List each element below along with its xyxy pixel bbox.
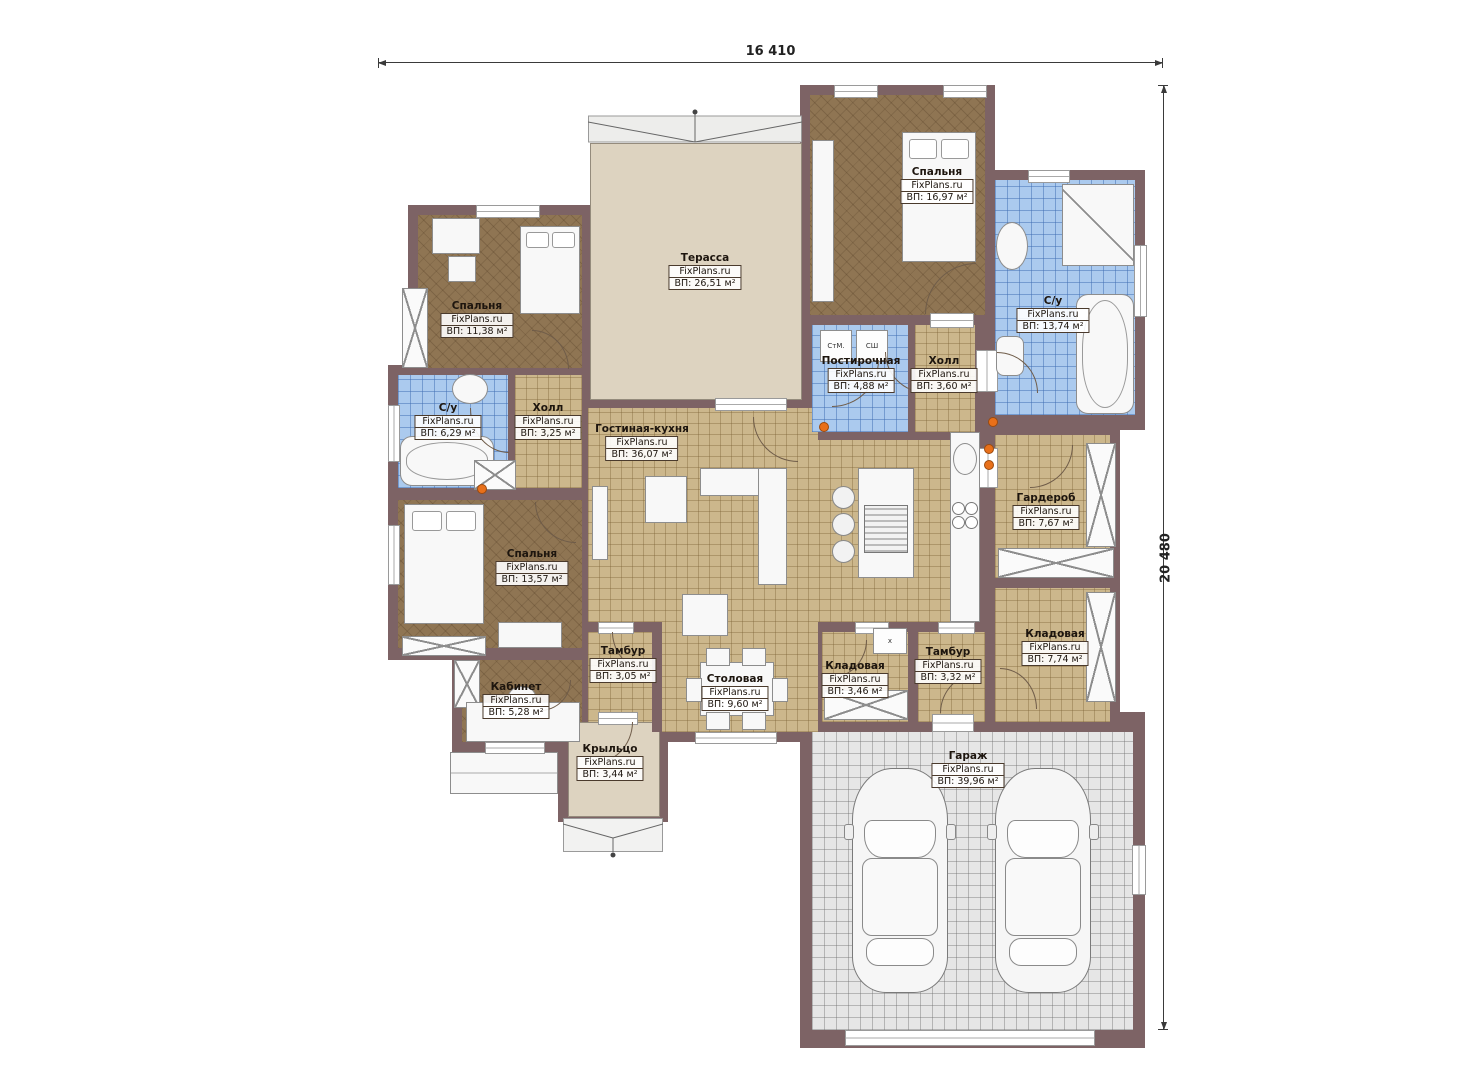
room-area: ВП: 16,97 м²	[901, 192, 972, 203]
desk	[498, 622, 562, 648]
door-opening	[932, 714, 974, 732]
dimension-right: 20 480	[1150, 85, 1174, 1030]
window	[1028, 170, 1070, 183]
watermark: FixPlans.ru	[590, 659, 655, 671]
room-area: ВП: 5,28 м²	[483, 707, 548, 718]
room-area: ВП: 7,67 м²	[1013, 518, 1078, 529]
room-name: Кладовая	[1025, 628, 1085, 640]
nightstand	[448, 256, 476, 282]
room-info-box: FixPlans.ru ВП: 3,05 м²	[589, 658, 656, 683]
room-label-wardrobe: Гардероб FixPlans.ru ВП: 7,67 м²	[1012, 492, 1079, 530]
room-info-box: FixPlans.ru ВП: 3,32 м²	[914, 659, 981, 684]
watermark: FixPlans.ru	[828, 369, 893, 381]
office-stoop	[450, 752, 558, 794]
arrow-down-icon	[1161, 1022, 1167, 1030]
burner-icon	[965, 516, 978, 529]
room-name: Постирочная	[822, 355, 901, 367]
room-label-bedroom-left: Спальня FixPlans.ru ВП: 13,57 м²	[495, 548, 568, 586]
room-name: Кладовая	[825, 660, 885, 672]
arrow-left-icon	[378, 60, 386, 66]
room-name: Тамбур	[601, 645, 646, 657]
room-area: ВП: 36,07 м²	[606, 449, 677, 460]
wardrobe-cabinet	[998, 548, 1114, 578]
watermark: FixPlans.ru	[1017, 309, 1088, 321]
room-info-box: FixPlans.ru ВП: 39,96 м²	[931, 763, 1004, 788]
room-name: С/у	[1044, 295, 1062, 307]
wardrobe-cabinet	[402, 288, 428, 368]
dimension-top: 16 410	[378, 46, 1163, 68]
room-label-living-kitchen: Гостиная-кухня FixPlans.ru ВП: 36,07 м²	[595, 423, 689, 461]
room-name: Кабинет	[491, 681, 542, 693]
window	[943, 85, 987, 98]
pillow	[412, 511, 442, 531]
room-name: Терасса	[681, 252, 729, 264]
car-roof	[1005, 858, 1081, 936]
washing-machine-label: СтМ.	[827, 342, 844, 350]
car	[995, 768, 1091, 993]
watermark: FixPlans.ru	[932, 764, 1003, 776]
room-name: Спальня	[507, 548, 557, 560]
window	[1132, 845, 1146, 895]
window	[485, 742, 545, 754]
watermark: FixPlans.ru	[483, 695, 548, 707]
car-mirror	[946, 824, 956, 840]
room-info-box: FixPlans.ru ВП: 26,51 м²	[668, 265, 741, 290]
room-label-dining: Столовая FixPlans.ru ВП: 9,60 м²	[701, 673, 768, 711]
room-label-laundry: Постирочная FixPlans.ru ВП: 4,88 м²	[822, 355, 901, 393]
room-area: ВП: 3,44 м²	[577, 769, 642, 780]
bar-stool	[832, 513, 855, 536]
car-mirror	[844, 824, 854, 840]
burner-icon	[952, 516, 965, 529]
room-area: ВП: 26,51 м²	[669, 278, 740, 289]
dimension-height-label: 20 480	[1158, 533, 1173, 583]
watermark: FixPlans.ru	[515, 416, 580, 428]
chair	[742, 712, 766, 730]
room-label-tambour-left: Тамбур FixPlans.ru ВП: 3,05 м²	[589, 645, 656, 683]
room-area: ВП: 9,60 м²	[702, 699, 767, 710]
arrow-up-icon	[1161, 85, 1167, 93]
dryer-label: СШ	[866, 342, 878, 350]
terrace-roof-outline	[588, 108, 802, 143]
room-label-storage-middle: Кладовая FixPlans.ru ВП: 3,46 м²	[821, 660, 888, 698]
armchair	[645, 476, 687, 523]
room-area: ВП: 4,88 м²	[828, 381, 893, 392]
wardrobe-cabinet	[1086, 592, 1116, 702]
car-windshield	[864, 820, 936, 858]
car	[852, 768, 948, 993]
room-label-bedroom-top-left: Спальня FixPlans.ru ВП: 11,38 м²	[440, 300, 513, 338]
pillow	[909, 139, 937, 159]
car-mirror	[987, 824, 997, 840]
room-label-bathroom-top-right: С/у FixPlans.ru ВП: 13,74 м²	[1016, 295, 1089, 333]
room-name: Гараж	[949, 750, 988, 762]
room-area: ВП: 13,74 м²	[1017, 321, 1088, 332]
car-mirror	[1089, 824, 1099, 840]
watermark: FixPlans.ru	[822, 674, 887, 686]
window	[388, 525, 400, 585]
water-heater: х	[873, 628, 907, 654]
pillow	[526, 232, 549, 248]
window	[695, 732, 777, 744]
watermark: FixPlans.ru	[669, 266, 740, 278]
room-label-office: Кабинет FixPlans.ru ВП: 5,28 м²	[482, 681, 549, 719]
heater-dot-icon	[988, 417, 998, 427]
dresser	[432, 218, 480, 254]
burner-icon	[965, 502, 978, 515]
room-area: ВП: 3,05 м²	[590, 671, 655, 682]
watermark: FixPlans.ru	[915, 660, 980, 672]
window	[476, 205, 540, 218]
room-name: С/у	[439, 402, 457, 414]
room-label-hall-middle: Холл FixPlans.ru ВП: 3,60 м²	[910, 355, 977, 393]
watermark: FixPlans.ru	[441, 314, 512, 326]
tv-stand	[592, 486, 608, 560]
room-name: Тамбур	[926, 646, 971, 658]
bar-stool	[832, 540, 855, 563]
chair	[706, 712, 730, 730]
floor-plan: 16 410 20 480	[0, 0, 1474, 1080]
pillow	[446, 511, 476, 531]
room-label-tambour-right: Тамбур FixPlans.ru ВП: 3,32 м²	[914, 646, 981, 684]
garage-door	[845, 1030, 1095, 1046]
door-opening	[938, 622, 975, 634]
chair	[742, 648, 766, 666]
room-info-box: FixPlans.ru ВП: 9,60 м²	[701, 686, 768, 711]
door-opening	[976, 350, 998, 392]
watermark: FixPlans.ru	[496, 562, 567, 574]
room-info-box: FixPlans.ru ВП: 3,46 м²	[821, 673, 888, 698]
car-roof	[862, 858, 938, 936]
water-heater-label: х	[888, 637, 892, 645]
room-name: Холл	[533, 402, 564, 414]
dishwasher	[864, 505, 908, 553]
wardrobe-cabinet	[454, 660, 480, 708]
sink	[452, 374, 488, 404]
pillow	[941, 139, 969, 159]
chair	[686, 678, 702, 702]
shower	[1062, 184, 1134, 266]
room-info-box: FixPlans.ru ВП: 6,29 м²	[414, 415, 481, 440]
window	[834, 85, 878, 98]
porch-steps	[563, 818, 663, 860]
car-rear-window	[1009, 938, 1077, 966]
room-info-box: FixPlans.ru ВП: 13,74 м²	[1016, 308, 1089, 333]
heater-dot-icon	[819, 422, 829, 432]
room-name: Спальня	[452, 300, 502, 312]
watermark: FixPlans.ru	[577, 757, 642, 769]
dimension-line	[378, 62, 1163, 63]
room-name: Крыльцо	[583, 743, 638, 755]
closet	[812, 140, 834, 302]
bar-stool	[832, 486, 855, 509]
window	[1134, 245, 1147, 317]
room-info-box: FixPlans.ru ВП: 13,57 м²	[495, 561, 568, 586]
room-label-hall-left: Холл FixPlans.ru ВП: 3,25 м²	[514, 402, 581, 440]
room-info-box: FixPlans.ru ВП: 4,88 м²	[827, 368, 894, 393]
door-opening	[930, 313, 974, 328]
chair	[706, 648, 730, 666]
room-name: Холл	[929, 355, 960, 367]
room-area: ВП: 6,29 м²	[415, 428, 480, 439]
watermark: FixPlans.ru	[1013, 506, 1078, 518]
watermark: FixPlans.ru	[415, 416, 480, 428]
room-info-box: FixPlans.ru ВП: 3,44 м²	[576, 756, 643, 781]
pillow	[552, 232, 575, 248]
sofa	[758, 468, 787, 585]
room-area: ВП: 3,32 м²	[915, 672, 980, 683]
room-info-box: FixPlans.ru ВП: 3,60 м²	[910, 368, 977, 393]
sink	[996, 222, 1028, 270]
room-label-garage: Гараж FixPlans.ru ВП: 39,96 м²	[931, 750, 1004, 788]
bed	[404, 504, 484, 624]
room-area: ВП: 3,60 м²	[911, 381, 976, 392]
wardrobe-cabinet	[402, 636, 486, 656]
watermark: FixPlans.ru	[911, 369, 976, 381]
terrace-door-opening	[715, 398, 787, 411]
watermark: FixPlans.ru	[1022, 642, 1087, 654]
arrow-right-icon	[1155, 60, 1163, 66]
watermark: FixPlans.ru	[702, 687, 767, 699]
watermark: FixPlans.ru	[606, 437, 677, 449]
room-info-box: FixPlans.ru ВП: 36,07 м²	[605, 436, 678, 461]
room-area: ВП: 3,46 м²	[822, 686, 887, 697]
room-info-box: FixPlans.ru ВП: 16,97 м²	[900, 179, 973, 204]
wardrobe-cabinet	[1086, 443, 1116, 547]
room-info-box: FixPlans.ru ВП: 7,67 м²	[1012, 505, 1079, 530]
room-name: Гостиная-кухня	[595, 423, 689, 435]
coffee-table	[682, 594, 728, 636]
heater-dot-icon	[984, 444, 994, 454]
heater-dot-icon	[984, 460, 994, 470]
room-name: Спальня	[912, 166, 962, 178]
room-area: ВП: 3,25 м²	[515, 428, 580, 439]
chair	[772, 678, 788, 702]
room-info-box: FixPlans.ru ВП: 5,28 м²	[482, 694, 549, 719]
room-info-box: FixPlans.ru ВП: 7,74 м²	[1021, 641, 1088, 666]
burner-icon	[952, 502, 965, 515]
room-label-terrace: Терасса FixPlans.ru ВП: 26,51 м²	[668, 252, 741, 290]
room-area: ВП: 11,38 м²	[441, 326, 512, 337]
watermark: FixPlans.ru	[901, 180, 972, 192]
heater-dot-icon	[477, 484, 487, 494]
kitchen-sink	[953, 443, 977, 475]
bed	[520, 226, 580, 314]
room-label-porch: Крыльцо FixPlans.ru ВП: 3,44 м²	[576, 743, 643, 781]
room-label-bedroom-top-right: Спальня FixPlans.ru ВП: 16,97 м²	[900, 166, 973, 204]
car-windshield	[1007, 820, 1079, 858]
room-area: ВП: 7,74 м²	[1022, 654, 1087, 665]
dimension-width-label: 16 410	[746, 44, 796, 59]
room-name: Гардероб	[1017, 492, 1076, 504]
room-info-box: FixPlans.ru ВП: 3,25 м²	[514, 415, 581, 440]
room-area: ВП: 39,96 м²	[932, 776, 1003, 787]
room-info-box: FixPlans.ru ВП: 11,38 м²	[440, 313, 513, 338]
room-label-storage-right: Кладовая FixPlans.ru ВП: 7,74 м²	[1021, 628, 1088, 666]
car-rear-window	[866, 938, 934, 966]
room-area: ВП: 13,57 м²	[496, 574, 567, 585]
room-label-bathroom-left: С/у FixPlans.ru ВП: 6,29 м²	[414, 402, 481, 440]
window	[388, 405, 400, 462]
room-name: Столовая	[707, 673, 763, 685]
